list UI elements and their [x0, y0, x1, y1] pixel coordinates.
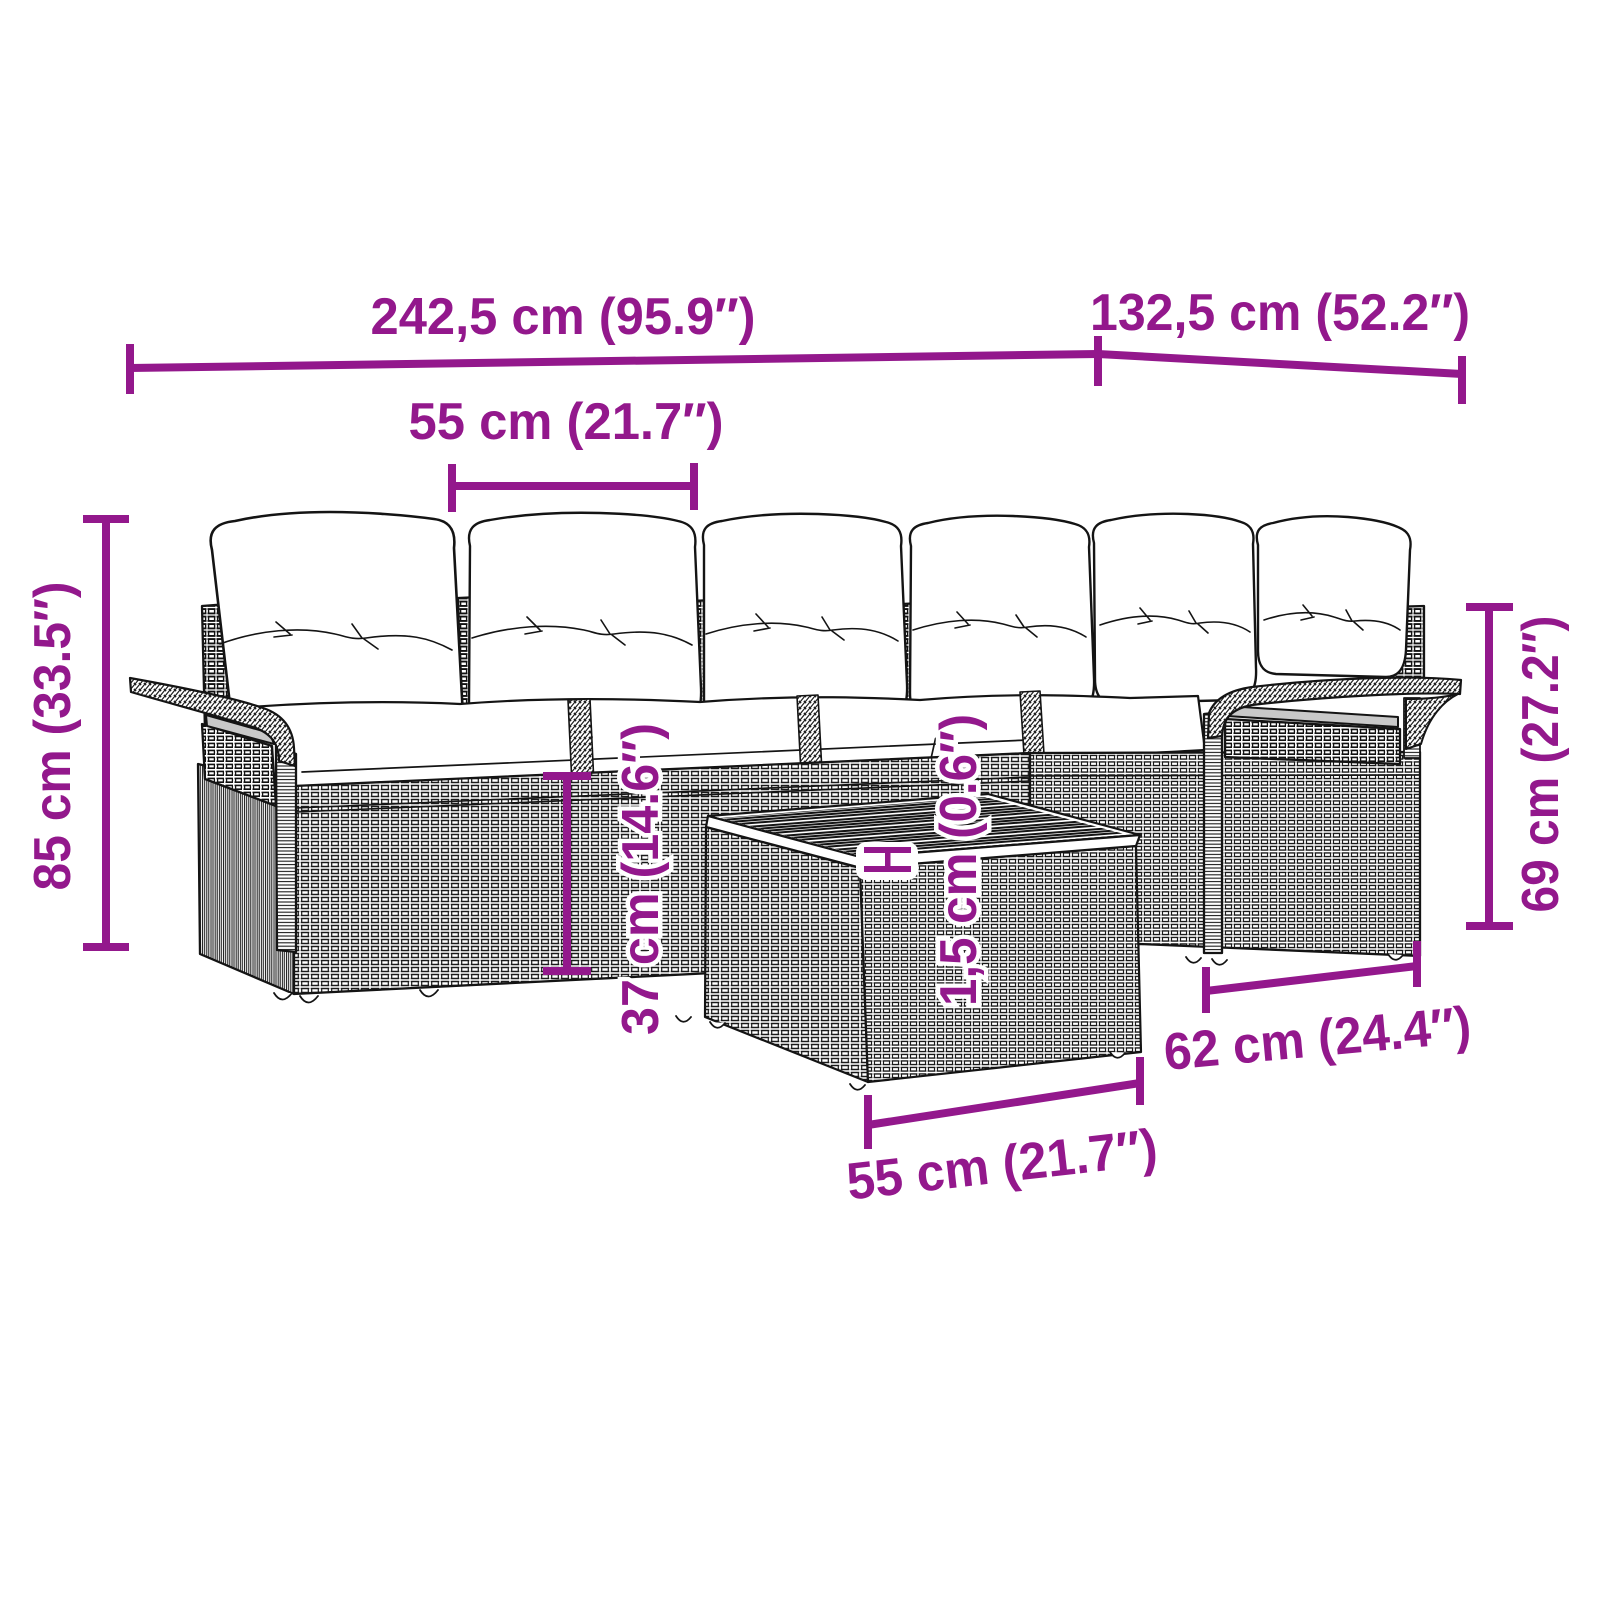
svg-text:132,5 cm (52.2″): 132,5 cm (52.2″) — [1090, 284, 1470, 342]
svg-text:55 cm (21.7″): 55 cm (21.7″) — [409, 393, 724, 451]
svg-text:69 cm (27.2″): 69 cm (27.2″) — [1512, 616, 1570, 913]
svg-text:1,5 cm (0.6″): 1,5 cm (0.6″) — [930, 714, 988, 1006]
svg-text:242,5 cm (95.9″): 242,5 cm (95.9″) — [371, 288, 756, 346]
svg-text:85 cm (33.5″): 85 cm (33.5″) — [24, 582, 82, 891]
svg-text:37 cm (14.6″): 37 cm (14.6″) — [612, 723, 670, 1035]
